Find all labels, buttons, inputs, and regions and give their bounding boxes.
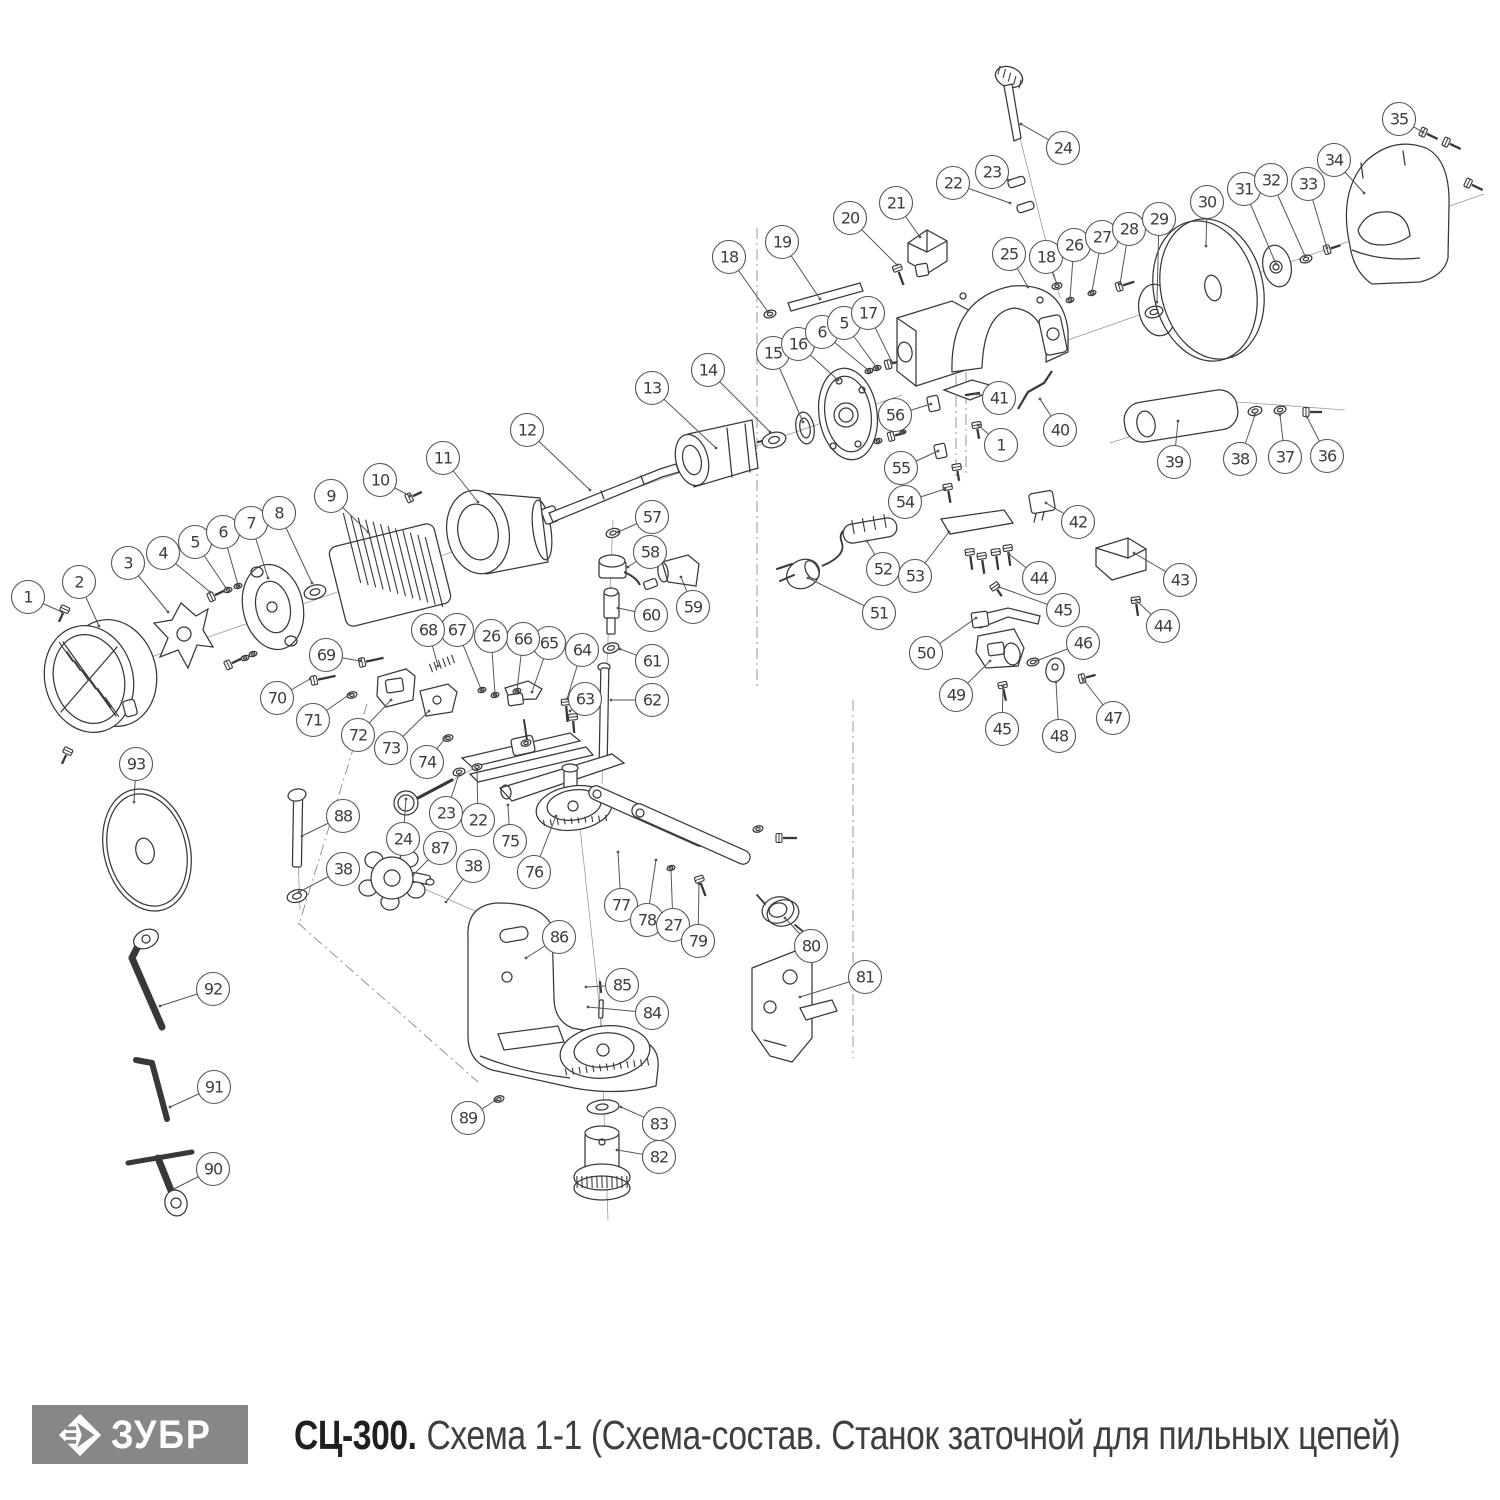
svg-text:37: 37	[1276, 448, 1294, 467]
part-detail	[1016, 201, 1035, 214]
spring	[429, 655, 454, 672]
balloon-55: 55	[885, 450, 940, 485]
part-detail	[798, 417, 811, 438]
svg-text:54: 54	[896, 493, 915, 512]
balloon-57: 57	[617, 501, 669, 534]
part-detail	[752, 825, 763, 834]
balloon-40: 40	[1039, 398, 1077, 447]
stator	[328, 522, 453, 628]
balloon-38: 38	[298, 853, 360, 894]
part-detail	[892, 264, 908, 287]
part-detail	[1026, 657, 1040, 667]
svg-text:90: 90	[204, 1160, 223, 1179]
svg-text:10: 10	[371, 471, 390, 490]
bearing	[760, 430, 787, 451]
svg-text:79: 79	[689, 932, 708, 951]
balloon-36: 36	[1306, 416, 1344, 473]
svg-text:87: 87	[431, 839, 449, 858]
part-detail	[602, 641, 620, 655]
balloon-24: 24	[1020, 123, 1080, 165]
svg-text:73: 73	[382, 739, 400, 758]
part-detail	[477, 687, 486, 694]
part-detail	[1303, 408, 1322, 417]
balloon-92: 92	[159, 973, 230, 1008]
svg-text:88: 88	[334, 807, 353, 826]
part-detail	[310, 671, 336, 685]
balloon-88: 88	[301, 800, 360, 838]
svg-text:63: 63	[576, 690, 594, 709]
svg-text:58: 58	[641, 543, 660, 562]
clamp-bolt	[292, 797, 302, 867]
diagram-caption: СЦ-300.Схема 1-1 (Схема-состав. Станок з…	[294, 1412, 1400, 1459]
part-detail	[781, 554, 824, 595]
svg-text:14: 14	[699, 361, 718, 380]
part-detail	[991, 548, 1003, 570]
part-detail	[763, 309, 777, 319]
guide-bracket	[377, 669, 415, 707]
svg-text:21: 21	[887, 194, 905, 213]
svg-text:68: 68	[419, 621, 438, 640]
part-detail	[834, 403, 858, 427]
svg-text:6: 6	[218, 523, 228, 542]
balloon-42: 42	[1045, 502, 1095, 539]
part-detail	[943, 483, 955, 503]
manual-page: 1234567891011121314151665171819202122232…	[0, 0, 1500, 1500]
clamp-body	[976, 629, 1024, 668]
balloon-58: 58	[627, 536, 667, 569]
svg-text:65: 65	[540, 634, 558, 653]
balloon-83: 83	[620, 1106, 676, 1141]
svg-text:67: 67	[448, 621, 466, 640]
svg-text:18: 18	[720, 248, 739, 267]
part-detail	[568, 714, 579, 734]
svg-text:77: 77	[612, 896, 630, 915]
part-detail	[1419, 127, 1440, 143]
brand-name: ЗУБР	[111, 1415, 212, 1455]
svg-text:24: 24	[394, 830, 413, 849]
svg-text:25: 25	[1000, 245, 1018, 264]
svg-text:69: 69	[317, 646, 336, 665]
balloon-89: 89	[452, 1099, 498, 1135]
svg-text:26: 26	[482, 627, 501, 646]
balloon-45: 45	[986, 685, 1019, 746]
part-detail	[585, 1126, 619, 1140]
svg-text:52: 52	[874, 560, 892, 579]
part-detail	[934, 443, 948, 459]
svg-text:29: 29	[1150, 210, 1169, 229]
svg-text:33: 33	[1299, 175, 1317, 194]
balloon-48: 48	[1043, 681, 1076, 753]
svg-text:39: 39	[1165, 453, 1184, 472]
balloon-53: 53	[899, 531, 951, 593]
svg-text:11: 11	[434, 449, 452, 468]
svg-text:51: 51	[870, 604, 888, 623]
svg-text:41: 41	[990, 389, 1008, 408]
svg-text:44: 44	[1154, 617, 1173, 636]
part-detail	[405, 488, 424, 503]
capacitor	[1028, 490, 1055, 514]
svg-text:38: 38	[464, 857, 483, 876]
svg-text:60: 60	[642, 606, 661, 625]
screw	[55, 605, 70, 624]
svg-text:46: 46	[1074, 634, 1093, 653]
svg-text:82: 82	[650, 1148, 668, 1167]
part-detail	[1004, 84, 1021, 141]
balloon-44: 44	[1008, 553, 1056, 595]
svg-text:81: 81	[856, 968, 874, 987]
part-detail	[152, 1063, 167, 1119]
part-detail	[286, 887, 309, 904]
svg-text:44: 44	[1030, 569, 1049, 588]
svg-text:22: 22	[944, 174, 962, 193]
handle	[1122, 387, 1241, 444]
svg-text:19: 19	[773, 233, 792, 252]
svg-text:34: 34	[1325, 151, 1344, 170]
svg-text:17: 17	[859, 304, 877, 323]
switch-plate	[941, 510, 1013, 534]
balloon-2: 2	[63, 566, 101, 628]
part-detail	[977, 552, 989, 574]
svg-text:50: 50	[917, 644, 936, 663]
balloon-69: 69	[310, 639, 362, 672]
balloon-44: 44	[1135, 599, 1180, 643]
part-detail	[162, 1188, 190, 1219]
svg-text:53: 53	[906, 567, 924, 586]
svg-text:12: 12	[518, 421, 536, 440]
svg-text:24: 24	[1054, 139, 1073, 158]
svg-text:38: 38	[1231, 450, 1250, 469]
torsion-spring	[759, 893, 797, 926]
svg-text:38: 38	[334, 860, 353, 879]
balloon-1: 1	[977, 424, 1018, 462]
svg-text:4: 4	[158, 544, 168, 563]
balloon-74: 74	[411, 736, 448, 779]
balloon-37: 37	[1269, 414, 1302, 474]
svg-text:32: 32	[1262, 171, 1280, 190]
balloon-75: 75	[494, 804, 527, 858]
svg-text:91: 91	[205, 1078, 223, 1097]
balloon-25: 25	[993, 238, 1030, 289]
part-detail	[793, 411, 816, 446]
balloon-52: 52	[866, 540, 900, 586]
cross-rod	[788, 283, 863, 311]
svg-text:30: 30	[1198, 193, 1217, 212]
end-bell	[235, 559, 312, 656]
balloon-56: 56	[879, 399, 933, 432]
part-detail	[694, 875, 710, 898]
part-detail	[1442, 137, 1463, 153]
svg-text:45: 45	[1054, 601, 1072, 620]
part-detail	[1034, 514, 1036, 522]
balloon-18: 18	[713, 241, 770, 314]
svg-text:8: 8	[274, 504, 284, 523]
svg-text:45: 45	[993, 720, 1011, 739]
balloon-35: 35	[1383, 103, 1425, 136]
svg-text:71: 71	[304, 711, 322, 730]
part-detail	[960, 293, 966, 299]
part-detail	[604, 588, 618, 596]
part-detail	[240, 655, 249, 662]
part-detail	[132, 958, 162, 1027]
balloon-28: 28	[1113, 213, 1146, 286]
svg-text:55: 55	[892, 459, 910, 478]
part-detail	[600, 982, 601, 992]
balloon-43: 43	[1133, 552, 1197, 597]
balloon-60: 60	[617, 599, 668, 632]
part-detail	[643, 578, 658, 590]
svg-text:35: 35	[1390, 110, 1408, 129]
svg-text:42: 42	[1069, 513, 1087, 532]
terminal-box	[1096, 538, 1146, 580]
part-detail	[630, 802, 753, 867]
svg-text:75: 75	[501, 832, 519, 851]
exploded-diagram: 1234567891011121314151665171819202122232…	[0, 0, 1500, 1500]
svg-text:74: 74	[418, 753, 437, 772]
part-detail	[58, 747, 73, 766]
balloon-23: 23	[430, 773, 463, 830]
part-detail	[586, 1099, 619, 1116]
svg-text:1: 1	[996, 436, 1005, 455]
balloon-19: 19	[766, 226, 822, 301]
part-detail	[358, 653, 384, 667]
svg-text:6: 6	[817, 323, 827, 342]
part-detail	[248, 651, 257, 658]
svg-text:20: 20	[841, 209, 860, 228]
svg-text:66: 66	[514, 630, 533, 649]
part-detail	[371, 857, 413, 899]
part-detail	[915, 263, 929, 277]
balloon-21: 21	[880, 187, 922, 239]
svg-text:13: 13	[643, 379, 661, 398]
svg-text:86: 86	[550, 928, 569, 947]
caption-text: Схема 1-1 (Схема-состав. Станок заточной…	[426, 1412, 1400, 1458]
balloon-46: 46	[1035, 627, 1100, 663]
svg-text:80: 80	[802, 937, 821, 956]
balloon-49: 49	[940, 660, 992, 712]
balloon-90: 90	[173, 1153, 230, 1191]
part-detail	[287, 788, 307, 803]
svg-text:57: 57	[643, 508, 661, 527]
part-detail	[1115, 277, 1136, 291]
svg-text:48: 48	[1050, 727, 1069, 746]
balloon-63: 63	[569, 683, 602, 716]
svg-text:59: 59	[684, 598, 703, 617]
svg-text:28: 28	[1120, 220, 1139, 239]
part-detail	[426, 879, 434, 885]
balloon-47: 47	[1082, 678, 1130, 735]
svg-text:62: 62	[643, 691, 661, 710]
part-detail	[927, 395, 941, 412]
svg-text:78: 78	[638, 911, 657, 930]
svg-text:92: 92	[204, 980, 222, 999]
svg-text:26: 26	[1065, 236, 1084, 255]
balloon-23: 23	[976, 156, 1010, 189]
svg-text:23: 23	[437, 804, 455, 823]
part-detail	[452, 767, 466, 777]
balloon-85: 85	[585, 969, 639, 1002]
part-detail	[776, 834, 797, 843]
part-detail	[507, 693, 523, 706]
balloon-14: 14	[692, 354, 772, 434]
balloon-61: 61	[619, 645, 669, 678]
svg-text:3: 3	[123, 554, 132, 573]
part-detail	[1003, 544, 1015, 566]
svg-text:85: 85	[613, 976, 631, 995]
svg-text:27: 27	[1093, 228, 1111, 247]
svg-text:84: 84	[643, 1004, 662, 1023]
part-detail	[1078, 671, 1097, 684]
bearing	[303, 583, 328, 602]
svg-text:40: 40	[1051, 421, 1070, 440]
part-detail	[757, 895, 765, 904]
part-detail	[1042, 512, 1044, 520]
balloon-77: 77	[605, 851, 638, 922]
balloon-67: 67	[441, 614, 483, 691]
part-detail	[442, 734, 453, 743]
svg-text:36: 36	[1318, 447, 1337, 466]
svg-text:64: 64	[573, 641, 592, 660]
balloon-10: 10	[364, 464, 412, 498]
svg-text:18: 18	[1037, 248, 1056, 267]
balloon-82: 82	[616, 1141, 676, 1174]
svg-text:9: 9	[326, 487, 336, 506]
part-detail	[989, 581, 1005, 598]
svg-text:5: 5	[190, 533, 199, 552]
svg-text:70: 70	[268, 689, 287, 708]
model-number: СЦ-300.	[294, 1412, 417, 1458]
part-detail	[1007, 176, 1026, 189]
balloon-1: 1	[12, 581, 64, 614]
zubr-diamond-icon	[57, 1412, 103, 1458]
zubr-logo: ЗУБР	[32, 1405, 248, 1464]
part-detail	[420, 684, 457, 716]
part-detail	[998, 681, 1011, 701]
part-detail	[599, 1000, 604, 1018]
svg-text:22: 22	[469, 811, 487, 830]
svg-text:16: 16	[789, 335, 808, 354]
part-detail	[599, 555, 625, 567]
part-detail	[965, 548, 977, 570]
part-detail	[607, 618, 615, 634]
svg-text:15: 15	[764, 344, 782, 363]
balloon-91: 91	[169, 1071, 231, 1109]
section-dash-line	[298, 923, 478, 1082]
svg-text:5: 5	[839, 314, 848, 333]
svg-text:89: 89	[459, 1109, 478, 1128]
part-detail	[1464, 178, 1485, 194]
svg-text:72: 72	[349, 726, 367, 745]
part-detail	[599, 668, 609, 762]
svg-text:56: 56	[886, 406, 905, 425]
balloon-68: 68	[412, 614, 445, 668]
svg-text:93: 93	[127, 755, 145, 774]
balloon-50: 50	[910, 617, 978, 670]
svg-text:1: 1	[23, 588, 32, 607]
svg-text:27: 27	[664, 916, 682, 935]
balloon-62: 62	[610, 684, 669, 717]
balloon-12: 12	[511, 414, 592, 492]
cord-grip	[842, 516, 898, 544]
balloon-9: 9	[315, 480, 370, 534]
svg-text:7: 7	[246, 514, 255, 533]
part-detail	[952, 463, 964, 481]
wire-clip	[1018, 371, 1052, 409]
part-detail	[624, 572, 640, 585]
svg-text:76: 76	[525, 863, 544, 882]
svg-text:2: 2	[74, 573, 83, 592]
balloon-11: 11	[427, 442, 480, 504]
svg-text:49: 49	[947, 686, 966, 705]
balloon-54: 54	[889, 486, 947, 519]
svg-text:83: 83	[650, 1115, 668, 1134]
balloon-66: 66	[507, 623, 540, 692]
svg-text:61: 61	[643, 652, 661, 671]
svg-text:43: 43	[1171, 571, 1189, 590]
svg-text:31: 31	[1235, 180, 1253, 199]
part-detail	[562, 764, 578, 772]
part-detail	[177, 627, 191, 641]
svg-text:23: 23	[983, 163, 1001, 182]
svg-text:47: 47	[1104, 709, 1122, 728]
